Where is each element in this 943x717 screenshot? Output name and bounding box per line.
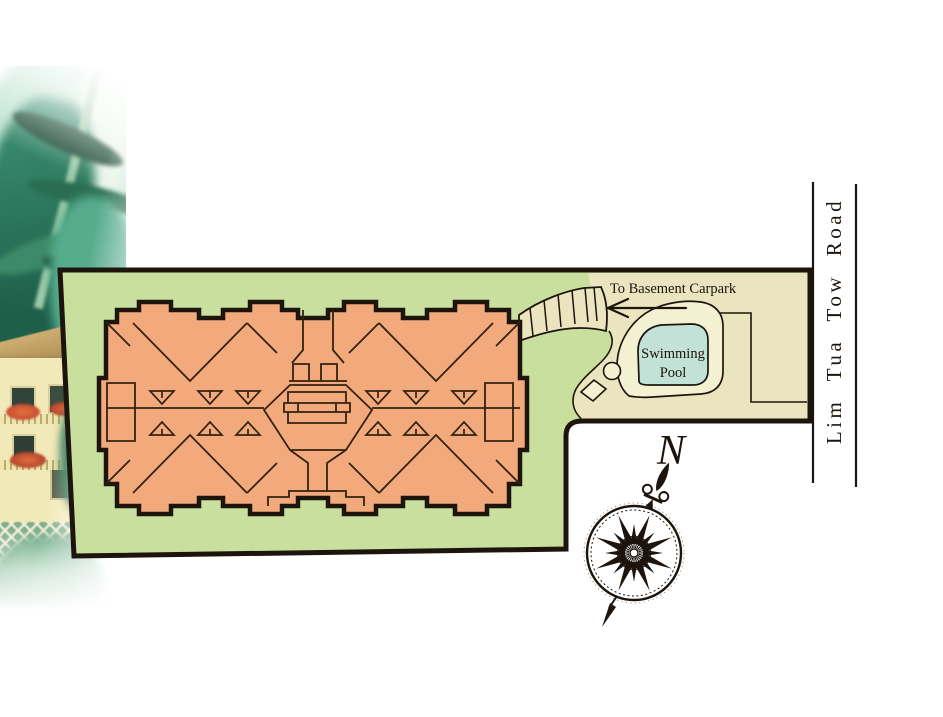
compass-rose-icon: N [584, 428, 687, 627]
building-footprint [99, 302, 527, 514]
road: Lim Tua Tow Road [813, 182, 856, 487]
road-name-label: Lim Tua Tow Road [822, 198, 846, 444]
north-label: N [656, 428, 687, 474]
pool-label-line2: Pool [660, 365, 687, 381]
carpark-label: To Basement Carpark [610, 281, 737, 297]
landscape-circle [604, 363, 621, 380]
site-plan-map: Swimming Pool Lim Tua Tow Road To Baseme… [0, 0, 943, 717]
site-plan-page: Swimming Pool Lim Tua Tow Road To Baseme… [0, 0, 943, 717]
pool-label-line1: Swimming [641, 346, 705, 362]
